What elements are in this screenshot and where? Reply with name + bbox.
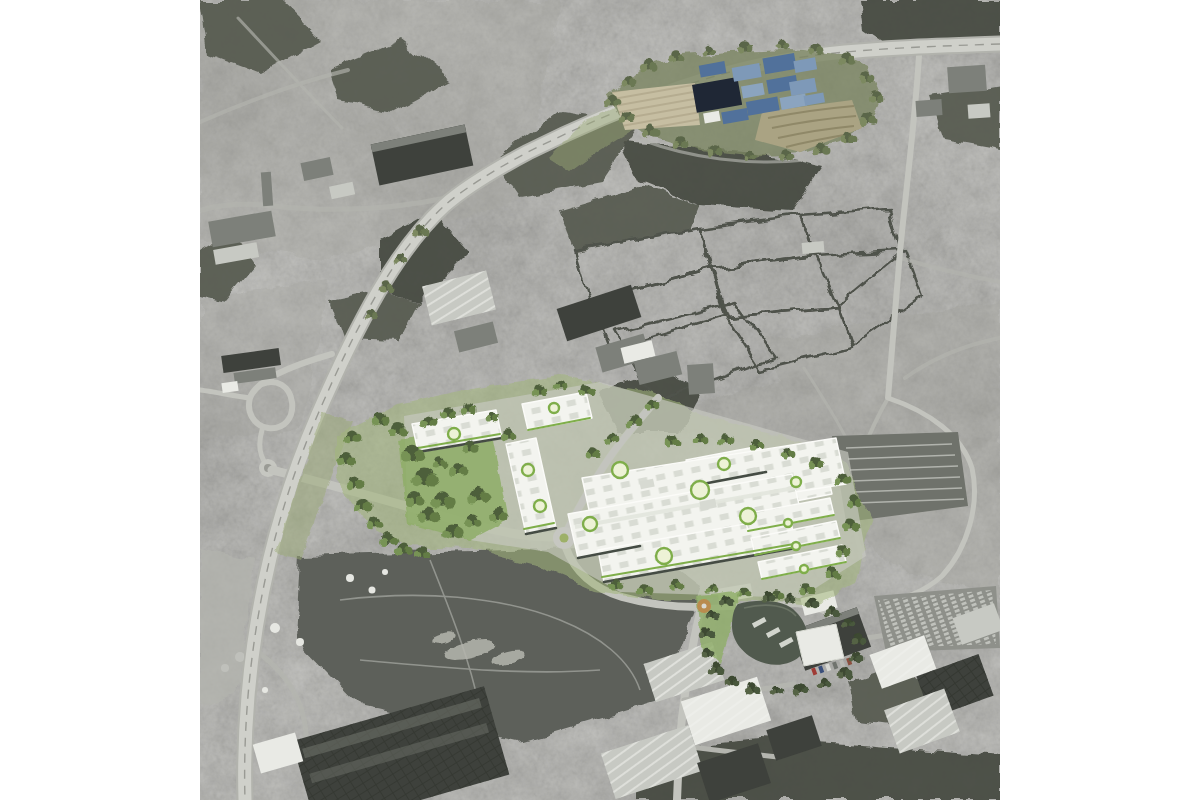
photomontage-svg [0, 0, 1200, 800]
aerial-photomontage [0, 0, 1200, 800]
annex-white-unit [796, 624, 844, 666]
aerial-photo [200, 0, 1003, 800]
